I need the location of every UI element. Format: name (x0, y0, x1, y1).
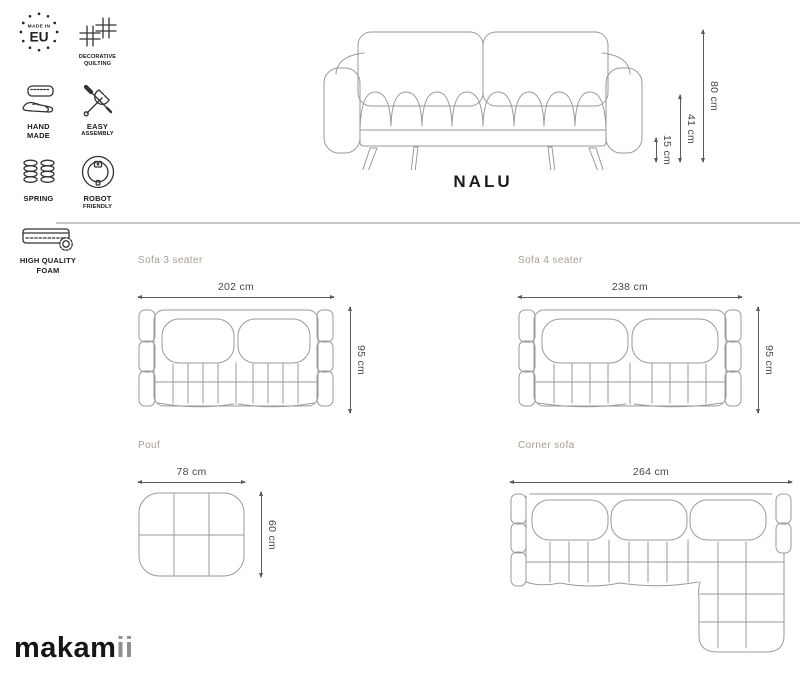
dimension-value: 95 cm (355, 345, 367, 375)
corner-sofa-top-view (510, 490, 792, 658)
product-title: NALU (318, 172, 648, 192)
brand-logo-suffix: ii (116, 632, 133, 664)
eu-label: EU (29, 29, 48, 44)
dimension-width: 202 cm (138, 281, 334, 298)
dimension-value: 95 cm (763, 345, 775, 375)
variant-pouf: Pouf 78 cm 60 cm (138, 440, 308, 600)
section-divider (56, 222, 800, 224)
dimension-line (518, 297, 742, 298)
feature-label: MADE (27, 131, 50, 141)
feature-label: QUILTING (79, 61, 116, 68)
feature-made-in-eu: MADE IN EU (17, 12, 61, 69)
spring-icon (19, 152, 59, 192)
dimension-width: 238 cm (518, 281, 742, 298)
dimension-line (510, 482, 792, 483)
feature-label: DECORATIVE (79, 54, 116, 61)
feature-label: FRIENDLY (83, 204, 112, 212)
foam-icon (20, 222, 76, 254)
feature-robot-friendly: ROBOT FRIENDLY (78, 152, 118, 211)
dimension-value: 264 cm (510, 466, 792, 478)
dimension-value: 78 cm (138, 466, 245, 478)
variant-name: Pouf (138, 440, 308, 451)
variant-name: Sofa 4 seater (518, 255, 784, 266)
sofa-4-seater-top-view (518, 307, 742, 413)
feature-icons-panel: MADE IN EU DECORATIVE QUILTING (10, 12, 128, 276)
sofa-front-illustration (318, 26, 648, 170)
dimension-value: 41 cm (685, 113, 697, 143)
easy-assembly-icon (78, 80, 118, 120)
sofa-3-seater-top-view (138, 307, 334, 413)
dimension-line (138, 297, 334, 298)
dimension-value: 60 cm (266, 519, 278, 549)
feature-label: HAND (27, 122, 50, 132)
dimension-line (138, 482, 245, 483)
dimension-line (703, 30, 704, 162)
dimension-line (261, 492, 262, 577)
variant-sofa-4-seater: Sofa 4 seater 238 cm 95 cm (518, 255, 784, 425)
dimension-depth: 60 cm (261, 492, 279, 577)
variant-name: Sofa 3 seater (138, 255, 378, 266)
variant-name: Corner sofa (518, 440, 800, 451)
brand-logo: makamii (14, 632, 134, 665)
dimension-value: 15 cm (661, 135, 673, 165)
dimension-line (758, 307, 759, 413)
dimension-value: 80 cm (708, 81, 720, 111)
feature-easy-assembly: EASY ASSEMBLY (78, 80, 118, 142)
made-in-eu-icon: MADE IN EU (17, 12, 61, 52)
dimension-line (680, 95, 681, 162)
dimension-depth: 95 cm (758, 307, 776, 413)
dimension-value: 238 cm (518, 281, 742, 293)
feature-label: ASSEMBLY (81, 131, 113, 139)
dimension-overall-height: 80 cm (703, 30, 721, 162)
feature-spring: SPRING (19, 152, 59, 211)
feature-label: SPRING (24, 194, 54, 204)
product-spec-sheet: MADE IN EU DECORATIVE QUILTING (0, 0, 800, 680)
brand-logo-main: makam (14, 632, 116, 664)
variant-corner-sofa: Corner sofa 264 cm (510, 440, 800, 670)
robot-friendly-icon (78, 152, 118, 192)
feature-high-quality-foam: HIGH QUALITY FOAM (10, 222, 86, 276)
dimension-width: 264 cm (510, 466, 792, 483)
dimension-width: 78 cm (138, 466, 245, 483)
dimension-line (350, 307, 351, 413)
feature-label: EASY (81, 122, 113, 132)
feature-label: FOAM (20, 266, 76, 276)
feature-label: HIGH QUALITY (20, 256, 76, 266)
hand-made-icon (19, 80, 59, 120)
dimension-depth: 95 cm (350, 307, 368, 413)
dimension-line (656, 138, 657, 162)
pouf-top-view (138, 492, 245, 577)
dimension-leg-height: 15 cm (656, 138, 674, 162)
feature-label: ROBOT (83, 194, 112, 204)
quilting-icon (78, 12, 118, 52)
feature-hand-made: HAND MADE (19, 80, 59, 142)
variant-sofa-3-seater: Sofa 3 seater 202 cm 95 cm (138, 255, 378, 425)
dimension-value: 202 cm (138, 281, 334, 293)
dimension-seat-height: 41 cm (680, 95, 698, 162)
feature-decorative-quilting: DECORATIVE QUILTING (78, 12, 118, 69)
